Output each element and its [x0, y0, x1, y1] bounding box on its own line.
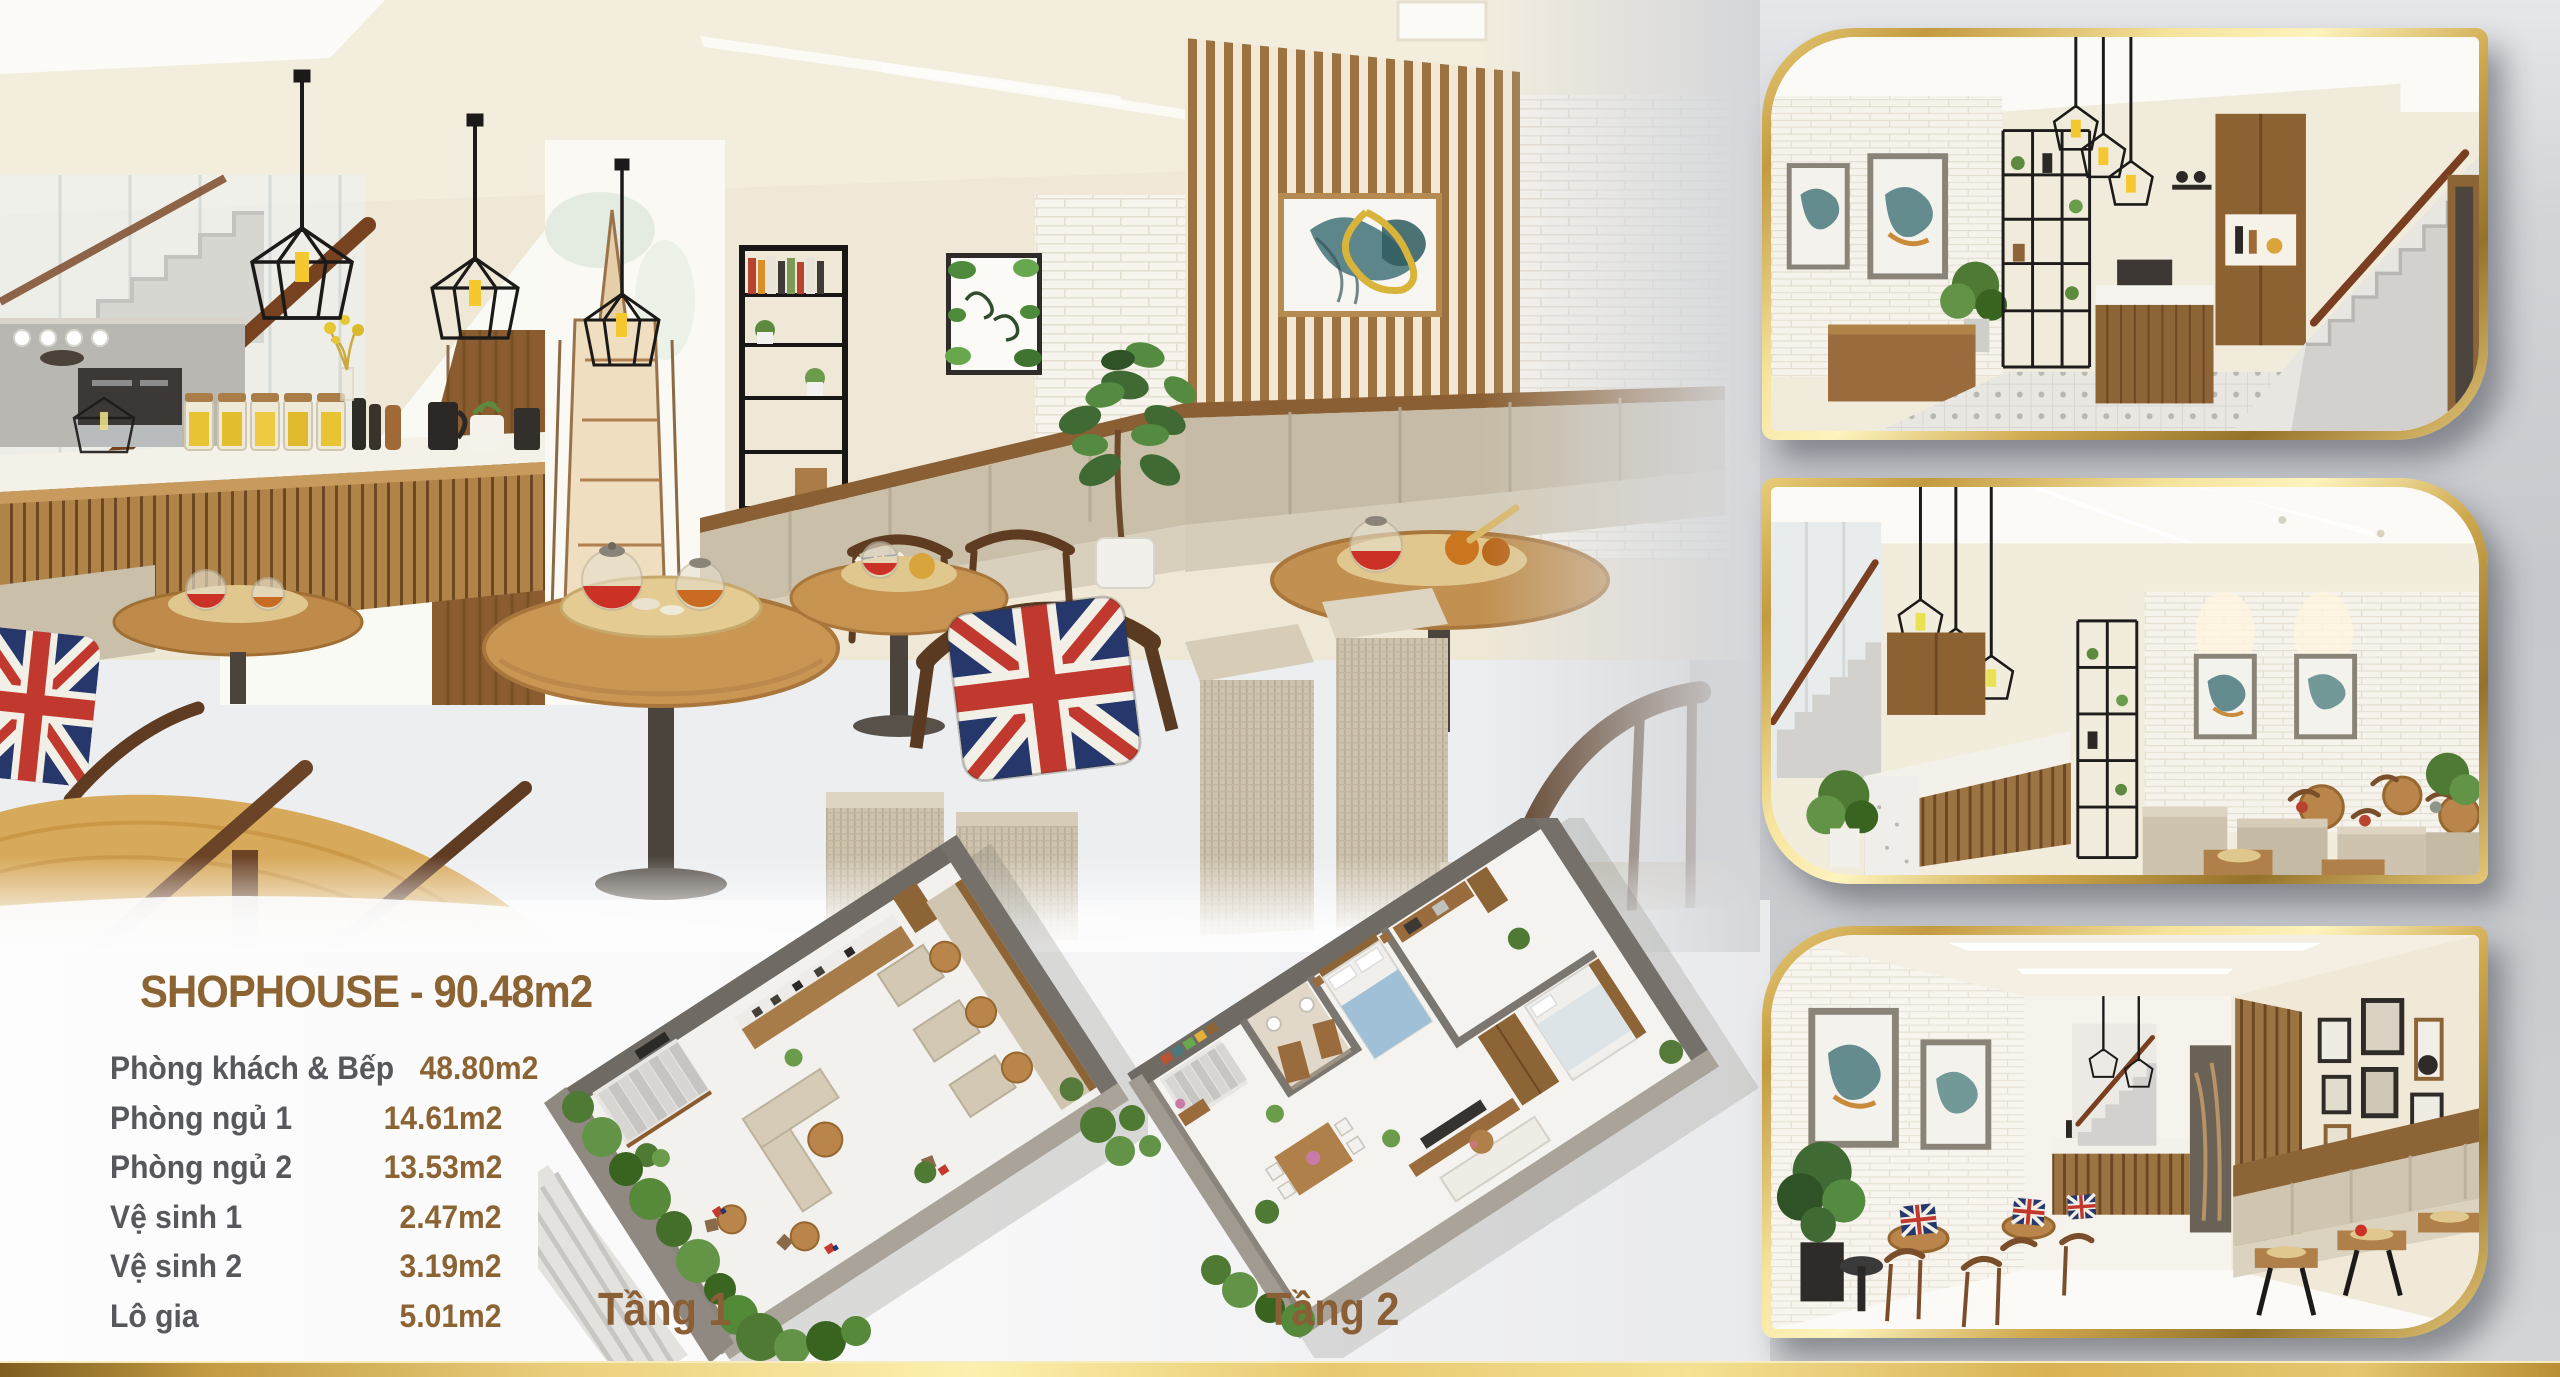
- back-doorway-mural: [2190, 1045, 2231, 1232]
- thumbnail-dining-room: [1762, 926, 2488, 1338]
- art-frames: [1787, 153, 1948, 279]
- spec-row: Phòng khách & Bếp 48.80m2: [110, 1044, 502, 1094]
- door-frame: [2448, 175, 2479, 411]
- specs-title: SHOPHOUSE - 90.48m2: [140, 966, 477, 1018]
- room-area: 5.01m2: [400, 1298, 502, 1335]
- specs-rows: Phòng khách & Bếp 48.80m2 Phòng ngủ 1 14…: [110, 1044, 502, 1341]
- floorplan-level-2: [1088, 818, 1758, 1358]
- tall-cabinet: [2215, 114, 2305, 345]
- thumbnail-entry-staircase: [1762, 28, 2488, 440]
- room-label: Phòng ngủ 2: [110, 1149, 292, 1186]
- snack-jars: [185, 393, 345, 450]
- spec-row: Vệ sinh 1 2.47m2: [110, 1193, 502, 1243]
- room-label: Phòng khách & Bếp: [110, 1050, 394, 1087]
- room-label: Phòng ngủ 1: [110, 1100, 292, 1137]
- room-area: 48.80m2: [420, 1050, 539, 1087]
- union-jack-pillow: [936, 586, 1151, 792]
- sideboard: [1828, 325, 1976, 402]
- area-specs: SHOPHOUSE - 90.48m2 Phòng khách & Bếp 48…: [110, 966, 502, 1341]
- abstract-art-frame: [1278, 193, 1442, 317]
- spec-row: Phòng ngủ 1 14.61m2: [110, 1094, 502, 1144]
- thumbnail-cafe-seating: [1762, 478, 2488, 884]
- room-area: 14.61m2: [383, 1100, 502, 1137]
- room-area: 2.47m2: [400, 1199, 502, 1236]
- spec-row: Lô gia 5.01m2: [110, 1292, 502, 1342]
- spec-row: Vệ sinh 2 3.19m2: [110, 1242, 502, 1292]
- room-area: 13.53m2: [383, 1149, 502, 1186]
- spec-row: Phòng ngủ 2 13.53m2: [110, 1143, 502, 1193]
- main-interior-photo: [0, 0, 1760, 952]
- room-label: Vệ sinh 2: [110, 1248, 242, 1285]
- room-area: 3.19m2: [400, 1248, 502, 1285]
- floorplan-2-label: Tầng 2: [1266, 1282, 1399, 1336]
- leaf-art-frame: [945, 253, 1042, 375]
- staircase-left: [1771, 522, 1881, 782]
- ceiling-light-recess: [1398, 2, 1486, 40]
- floorplan-1-label: Tầng 1: [598, 1282, 731, 1336]
- room-label: Lô gia: [110, 1298, 199, 1335]
- room-label: Vệ sinh 1: [110, 1199, 242, 1236]
